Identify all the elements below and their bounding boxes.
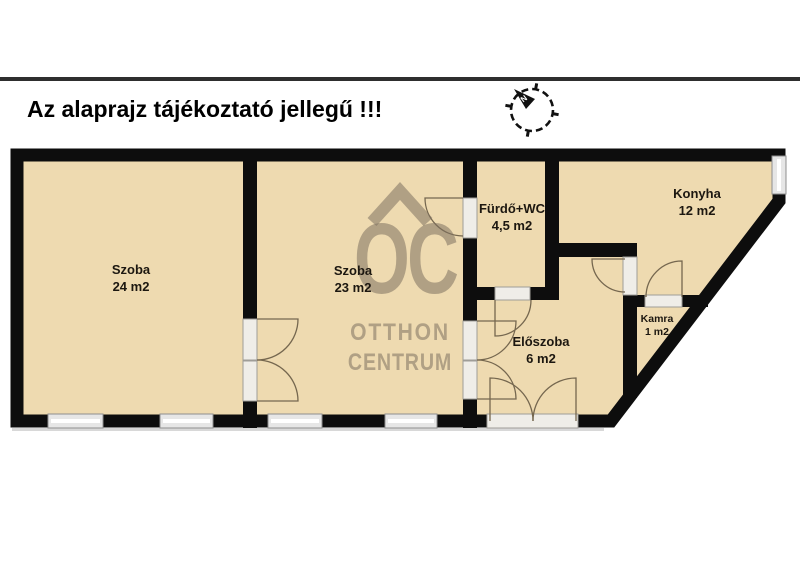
- window-glass: [163, 419, 210, 423]
- room-label-konyha: Konyha 12 m2: [637, 186, 757, 220]
- wall-segment: [463, 155, 477, 198]
- room-area: 1 m2: [645, 326, 669, 338]
- window-glass: [388, 419, 434, 423]
- door-sill: [243, 319, 257, 360]
- door-sill: [243, 361, 257, 401]
- door-sill: [463, 361, 477, 399]
- wall-segment: [463, 287, 495, 300]
- window-glass: [51, 419, 100, 423]
- room-label-szoba-24: Szoba 24 m2: [51, 262, 211, 296]
- room-area: 24 m2: [113, 279, 150, 294]
- wall-segment: [243, 155, 257, 319]
- room-area: 6 m2: [526, 351, 556, 366]
- room-name: Kamra: [641, 313, 674, 325]
- window-glass: [271, 419, 319, 423]
- window-glass: [777, 159, 781, 191]
- wall-segment: [463, 399, 477, 428]
- door-sill: [645, 295, 682, 307]
- room-name: Szoba: [112, 262, 150, 277]
- room-area: 12 m2: [679, 203, 716, 218]
- wall-segment: [682, 295, 708, 307]
- wall-segment: [530, 287, 559, 300]
- room-area: 23 m2: [335, 280, 372, 295]
- door-sill: [463, 321, 477, 360]
- floorplan-page: Az alaprajz tájékoztató jellegű !!! N: [0, 0, 800, 565]
- room-name: Konyha: [673, 186, 721, 201]
- wall-segment: [552, 243, 637, 257]
- room-label-kamra: Kamra 1 m2: [617, 313, 697, 339]
- room-name: Előszoba: [512, 334, 569, 349]
- room-label-szoba-23: Szoba 23 m2: [273, 263, 433, 297]
- door-sill: [623, 257, 637, 295]
- wall-segment: [243, 401, 257, 428]
- room-label-furdo-wc: Fürdő+WC 4,5 m2: [452, 201, 572, 235]
- room-area: 4,5 m2: [492, 218, 532, 233]
- watermark-otthon: OTTHON: [338, 319, 461, 347]
- door-sill: [495, 287, 530, 300]
- watermark-centrum: CENTRUM: [343, 349, 458, 377]
- room-label-eloszoba: Előszoba 6 m2: [481, 334, 601, 368]
- wall-segment: [463, 238, 477, 321]
- room-name: Szoba: [334, 263, 372, 278]
- wall-segment: [623, 295, 637, 398]
- room-name: Fürdő+WC: [479, 201, 545, 216]
